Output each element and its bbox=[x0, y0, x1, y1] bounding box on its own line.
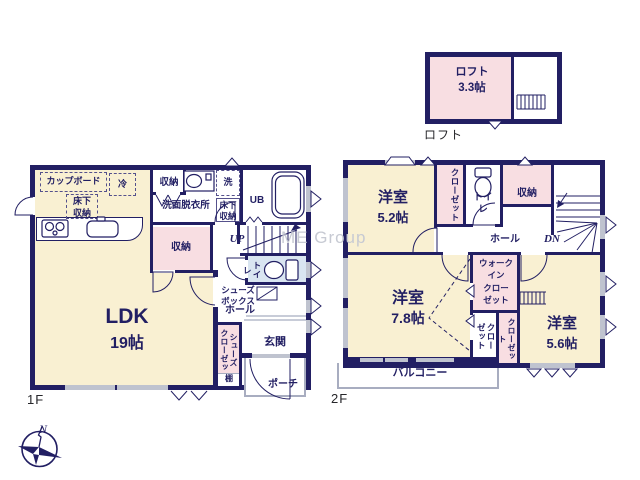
bedroom1-label: 洋室 5.2帖 bbox=[362, 186, 424, 226]
floor-label-loft: ロフト bbox=[424, 126, 463, 143]
room-size: 5.2帖 bbox=[362, 207, 424, 226]
balcony-label: バルコニー bbox=[392, 366, 448, 380]
cupboard-label: カップボード bbox=[40, 176, 107, 188]
loft-room-label: ロフト 3.3帖 bbox=[443, 63, 501, 95]
door-opening bbox=[30, 197, 35, 215]
toilet-1f-label: トイレ bbox=[249, 257, 261, 283]
room-size: 3.3帖 bbox=[443, 79, 501, 95]
window-tick bbox=[115, 385, 117, 390]
window bbox=[306, 186, 311, 212]
ldk-label: LDK 19帖 bbox=[96, 305, 158, 353]
window bbox=[600, 315, 605, 339]
window bbox=[600, 272, 605, 296]
storage-2f-label: 収納 bbox=[504, 187, 550, 200]
room-name: 洋室 bbox=[362, 186, 424, 207]
compass: N bbox=[12, 420, 68, 476]
storage-top-label: 収納 bbox=[152, 177, 186, 189]
window bbox=[416, 358, 454, 362]
shelf-label: 棚 bbox=[220, 374, 238, 384]
stairs-dn-label: DN bbox=[541, 232, 563, 246]
window-tick bbox=[383, 358, 385, 362]
hall-1f-label: ホール bbox=[222, 304, 258, 317]
window bbox=[343, 258, 348, 298]
compass-needle bbox=[18, 446, 39, 454]
stairs-up-label: UP bbox=[226, 232, 248, 246]
room-size: 5.6帖 bbox=[531, 333, 593, 352]
window bbox=[385, 160, 415, 165]
fridge-label: 冷 bbox=[109, 179, 136, 191]
storage-mid-label: 収納 bbox=[160, 241, 202, 254]
closet1-label: クローゼット bbox=[441, 167, 459, 223]
room-name: ロフト bbox=[443, 63, 501, 79]
window bbox=[306, 300, 311, 313]
porch-label: ポーチ bbox=[264, 378, 302, 391]
room-name: 洋室 bbox=[377, 284, 439, 308]
room-name: LDK bbox=[96, 305, 158, 329]
toilet-2f-label: トイレ bbox=[469, 192, 497, 217]
floor-label-1f: 1F bbox=[27, 392, 44, 407]
washroom-label: 洗面脱衣所 bbox=[155, 200, 217, 212]
entrance-label: 玄関 bbox=[258, 335, 292, 349]
closet2-label: クロー ゼット bbox=[473, 315, 495, 357]
floor-plan-canvas: カップボード 冷 床下 収納 収納 洗面脱衣所 洗 床下 収納 UB 収納 UP… bbox=[0, 0, 640, 480]
room-name: 洋室 bbox=[531, 312, 593, 333]
window bbox=[306, 262, 311, 278]
compass-needle bbox=[33, 454, 39, 465]
bath-label: UB bbox=[246, 194, 268, 207]
floor-label-2f: 2F bbox=[331, 391, 348, 406]
closet3-label: クローゼット bbox=[500, 316, 516, 362]
room-size: 7.8帖 bbox=[377, 308, 439, 328]
compass-north-label: N bbox=[38, 422, 48, 436]
shoe-closet-label: シューズ クローゼット bbox=[219, 328, 238, 372]
window bbox=[600, 215, 605, 239]
bedroom3-label: 洋室 5.6帖 bbox=[531, 312, 593, 352]
hall-2f-label: ホール bbox=[488, 233, 522, 246]
compass-needle bbox=[39, 447, 62, 458]
window bbox=[343, 308, 348, 348]
washer-label: 洗 bbox=[216, 177, 240, 189]
bedroom2-label: 洋室 7.8帖 bbox=[377, 284, 439, 328]
underfloor-storage2-label: 床下 収納 bbox=[216, 200, 240, 222]
window bbox=[343, 178, 348, 222]
window bbox=[530, 363, 575, 368]
watermark: ME Group bbox=[281, 228, 366, 248]
window bbox=[306, 320, 311, 333]
room-size: 19帖 bbox=[96, 329, 158, 353]
underfloor-storage-label: 床下 収納 bbox=[66, 196, 98, 219]
wic-label: ウォーク イン クロー ゼット bbox=[472, 257, 520, 306]
